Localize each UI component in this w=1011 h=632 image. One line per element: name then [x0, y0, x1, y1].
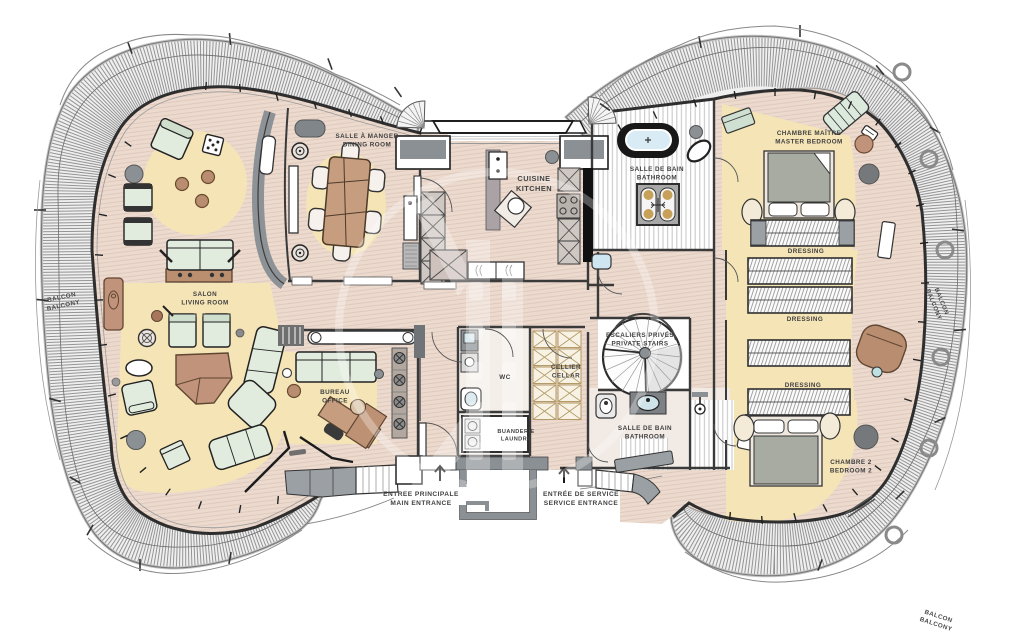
svg-text:DRESSING: DRESSING: [788, 248, 825, 255]
svg-text:BUREAUOFFICE: BUREAUOFFICE: [320, 389, 350, 404]
svg-text:DRESSING: DRESSING: [787, 316, 824, 323]
svg-text:SALLE DE BAINBATHROOM: SALLE DE BAINBATHROOM: [630, 166, 684, 181]
svg-text:BUANDERIELAUNDRY: BUANDERIELAUNDRY: [497, 429, 534, 443]
svg-text:SALLE DE BAINBATHROOM: SALLE DE BAINBATHROOM: [618, 425, 672, 440]
svg-text:BALCONBALCONY: BALCONBALCONY: [919, 608, 956, 632]
svg-text:ENTRÉE DE SERVICESERVICE ENTRA: ENTRÉE DE SERVICESERVICE ENTRANCE: [543, 489, 619, 507]
svg-text:CUISINEKITCHEN: CUISINEKITCHEN: [516, 174, 552, 193]
svg-text:WC: WC: [499, 374, 510, 381]
svg-text:SALLE À MANGERDINING ROOM: SALLE À MANGERDINING ROOM: [336, 131, 399, 148]
svg-text:CELLIERCELLAR: CELLIERCELLAR: [551, 364, 581, 379]
svg-text:CHAMBRE MAÎTREMASTER BEDROOM: CHAMBRE MAÎTREMASTER BEDROOM: [775, 128, 843, 145]
svg-text:DRESSING: DRESSING: [785, 382, 822, 389]
svg-text:ESCALIERS PRIVÉSPRIVATE STAIRS: ESCALIERS PRIVÉSPRIVATE STAIRS: [606, 330, 674, 347]
svg-text:CHAMBRE 2BEDROOM 2: CHAMBRE 2BEDROOM 2: [830, 459, 872, 474]
